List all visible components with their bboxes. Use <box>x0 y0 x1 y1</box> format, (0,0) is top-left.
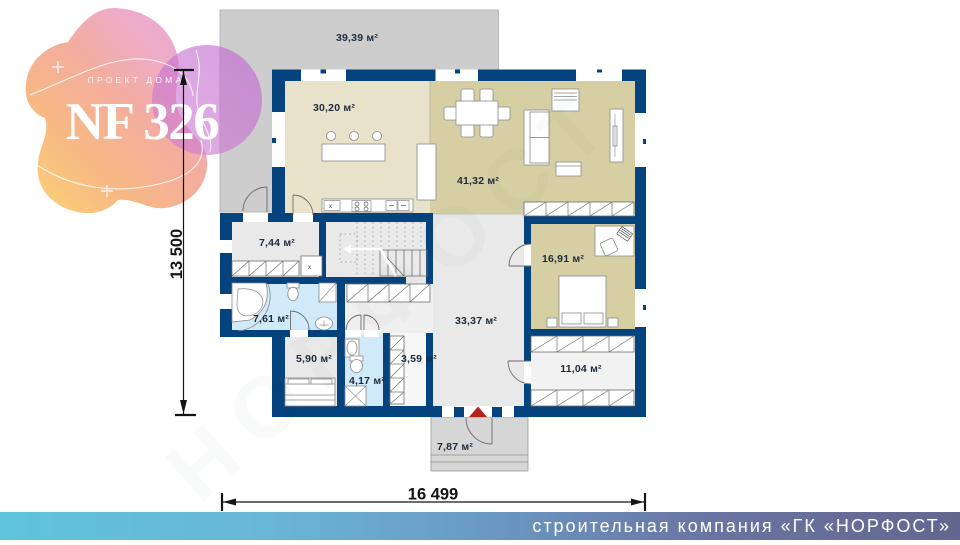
svg-text:39,39 м²: 39,39 м² <box>336 32 378 44</box>
svg-text:30,20 м²: 30,20 м² <box>313 102 355 114</box>
svg-text:x: x <box>308 265 311 271</box>
svg-text:x: x <box>329 204 332 210</box>
svg-text:33,37 м²: 33,37 м² <box>455 315 497 327</box>
svg-text:16,91 м²: 16,91 м² <box>542 253 584 265</box>
svg-text:3,59 м²: 3,59 м² <box>401 353 437 365</box>
svg-text:NF 326: NF 326 <box>66 93 218 151</box>
svg-text:13 500: 13 500 <box>168 229 186 279</box>
svg-text:7,87 м²: 7,87 м² <box>437 441 473 453</box>
svg-text:7,44 м²: 7,44 м² <box>259 237 295 249</box>
svg-text:16 499: 16 499 <box>408 486 458 504</box>
svg-text:ПРОЕКТ ДОМА: ПРОЕКТ ДОМА <box>88 75 185 85</box>
svg-text:11,04 м²: 11,04 м² <box>560 363 602 375</box>
svg-text:строительная компания «ГК «НОР: строительная компания «ГК «НОРФОСТ» <box>532 516 951 536</box>
svg-text:7,61 м²: 7,61 м² <box>253 313 289 325</box>
